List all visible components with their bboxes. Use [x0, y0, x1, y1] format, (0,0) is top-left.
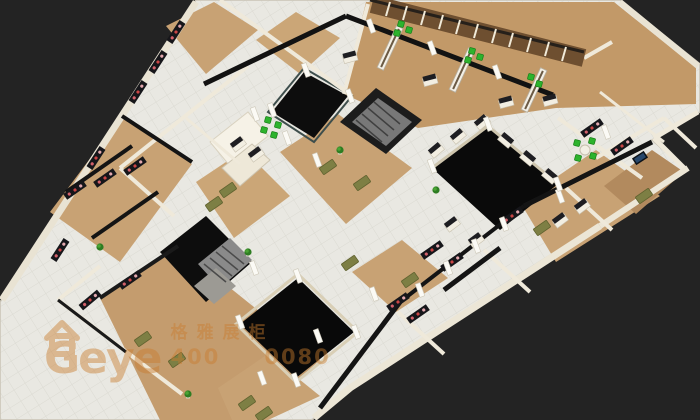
floorplan-render: Geye 格雅展柜 4000080	[0, 0, 700, 420]
green-chair	[405, 26, 412, 33]
chair-seat	[589, 152, 596, 159]
green-chair	[264, 116, 271, 123]
green-chair	[464, 56, 471, 63]
green-chair	[589, 152, 596, 159]
chair-seat	[274, 121, 281, 128]
plant-highlight	[245, 249, 249, 253]
green-chair	[527, 73, 534, 80]
chair-seat	[535, 80, 542, 87]
green-chair	[476, 53, 483, 60]
floor-and-carpets	[0, 0, 700, 420]
chair-seat	[573, 139, 580, 146]
chair-seat	[270, 131, 277, 138]
chair-seat	[464, 56, 471, 63]
green-chair	[573, 139, 580, 146]
green-chair	[270, 131, 277, 138]
green-chair	[588, 137, 595, 144]
round-table	[580, 145, 590, 155]
chair-seat	[405, 26, 412, 33]
chair-seat	[574, 154, 581, 161]
chair-seat	[588, 137, 595, 144]
plant-highlight	[433, 187, 437, 191]
chair-seat	[476, 53, 483, 60]
green-chair	[260, 126, 267, 133]
green-chair	[574, 154, 581, 161]
green-chair	[393, 29, 400, 36]
chair-seat	[468, 47, 475, 54]
chair-seat	[393, 29, 400, 36]
plant-highlight	[185, 391, 189, 395]
green-chair	[535, 80, 542, 87]
chair-seat	[527, 73, 534, 80]
chair-seat	[397, 20, 404, 27]
green-chair	[468, 47, 475, 54]
plant-highlight	[97, 244, 101, 248]
floorplan-svg	[0, 0, 700, 420]
plant-highlight	[337, 147, 341, 151]
green-chair	[397, 20, 404, 27]
chair-seat	[264, 116, 271, 123]
chair-seat	[260, 126, 267, 133]
green-chair	[274, 121, 281, 128]
